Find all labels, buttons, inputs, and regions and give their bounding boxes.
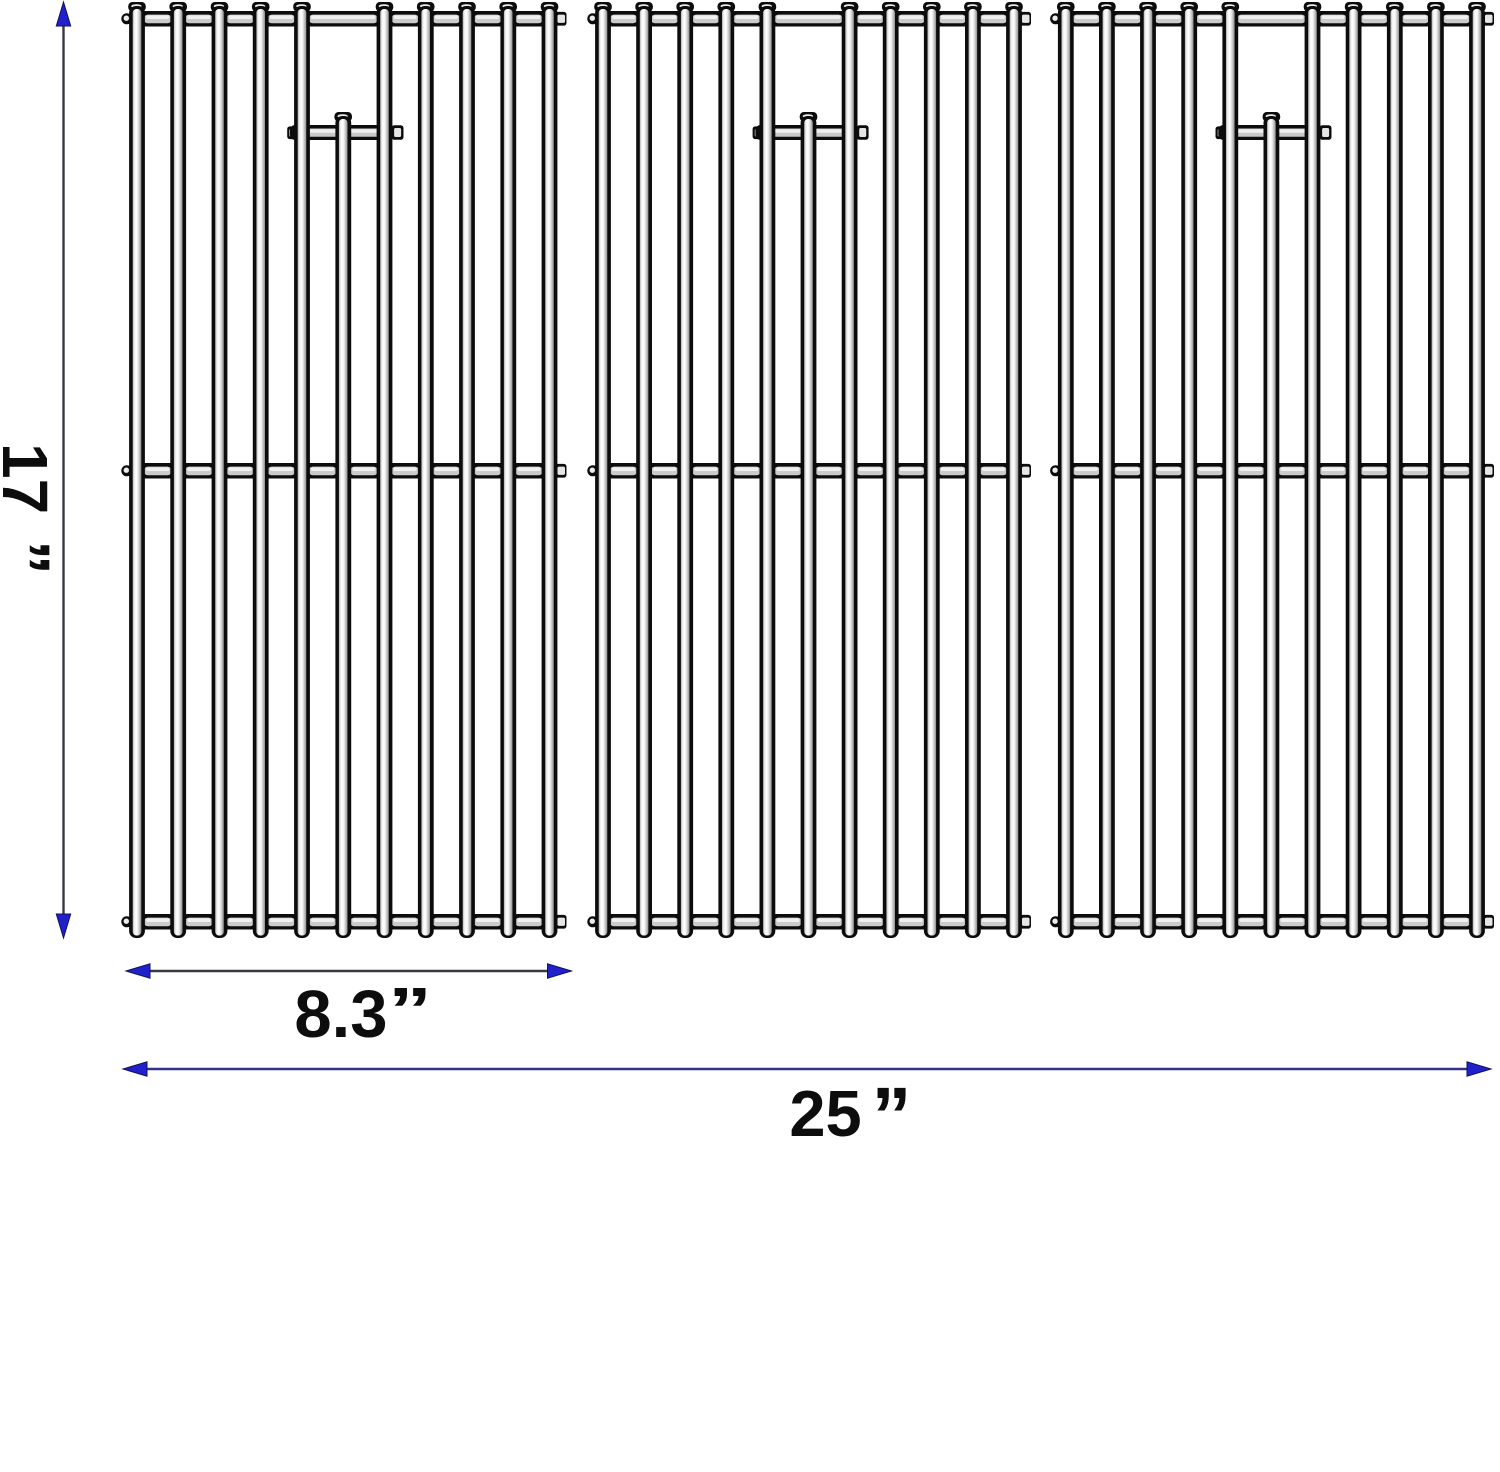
svg-text:8.3: 8.3 bbox=[294, 977, 387, 1052]
svg-text:”: ” bbox=[388, 975, 432, 1045]
svg-text:”: ” bbox=[872, 1071, 912, 1160]
svg-text:”: ” bbox=[0, 540, 65, 575]
svg-text:17: 17 bbox=[0, 443, 61, 514]
svg-text:25: 25 bbox=[789, 1077, 861, 1150]
